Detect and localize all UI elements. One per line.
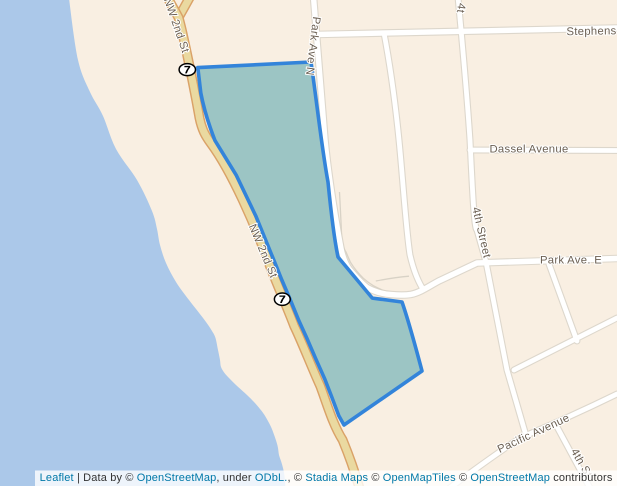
svg-text:Dassel Avenue: Dassel Avenue xyxy=(489,144,568,156)
svg-text:Leaflet | Data by © OpenStreet: Leaflet | Data by © OpenStreetMap, under… xyxy=(40,472,613,484)
svg-text:Stephens S: Stephens S xyxy=(566,25,617,38)
svg-text:Park Ave. E: Park Ave. E xyxy=(540,255,602,267)
